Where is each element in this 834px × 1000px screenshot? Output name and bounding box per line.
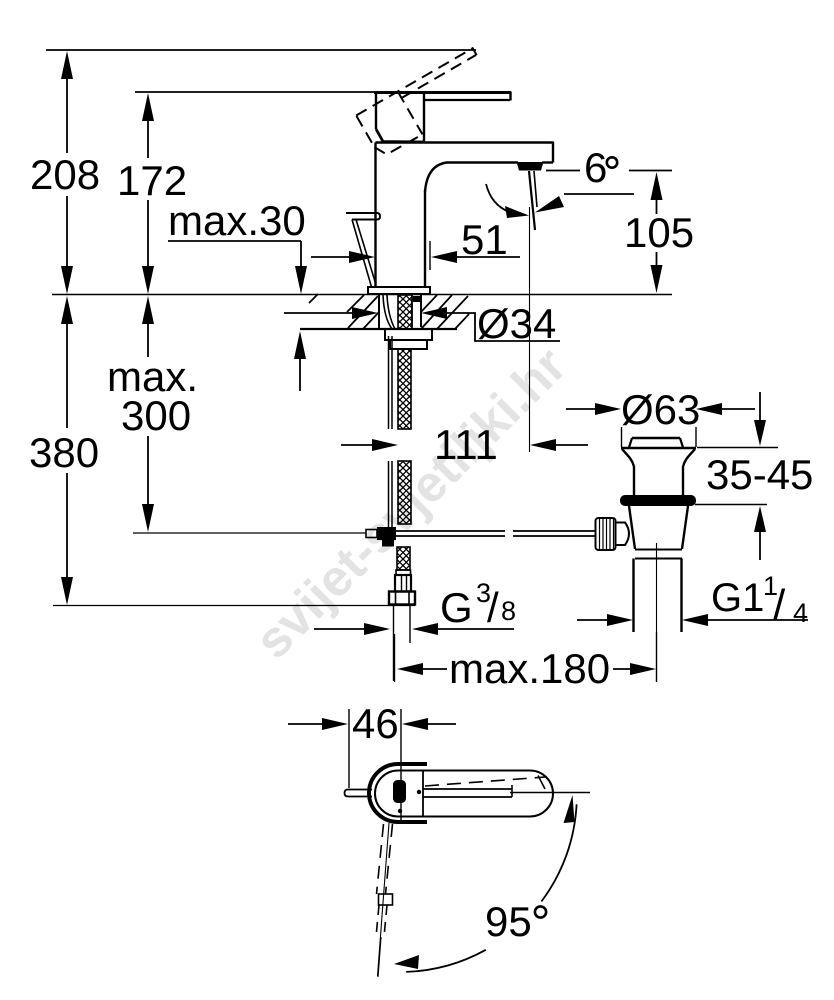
svg-text:380: 380 [29,429,99,476]
svg-text:105: 105 [624,209,694,256]
svg-text:208: 208 [30,151,100,198]
svg-text:6: 6 [584,144,607,191]
svg-text:Ø63: Ø63 [621,386,700,433]
svg-text:300: 300 [121,392,191,439]
svg-text:4: 4 [793,598,808,628]
svg-text:Ø34: Ø34 [477,300,556,347]
svg-text:35-45: 35-45 [706,451,813,498]
svg-text:max.30: max.30 [168,197,306,244]
svg-text:G: G [440,584,473,631]
svg-text:8: 8 [501,596,516,626]
svg-text:46: 46 [352,700,399,747]
svg-text:51: 51 [461,216,508,263]
svg-text:111: 111 [434,421,498,468]
svg-text:/: / [773,581,786,630]
svg-text:max.180: max.180 [449,645,610,692]
svg-text:G1: G1 [711,576,764,620]
svg-text:95: 95 [485,898,532,945]
svg-text:/: / [487,584,499,631]
